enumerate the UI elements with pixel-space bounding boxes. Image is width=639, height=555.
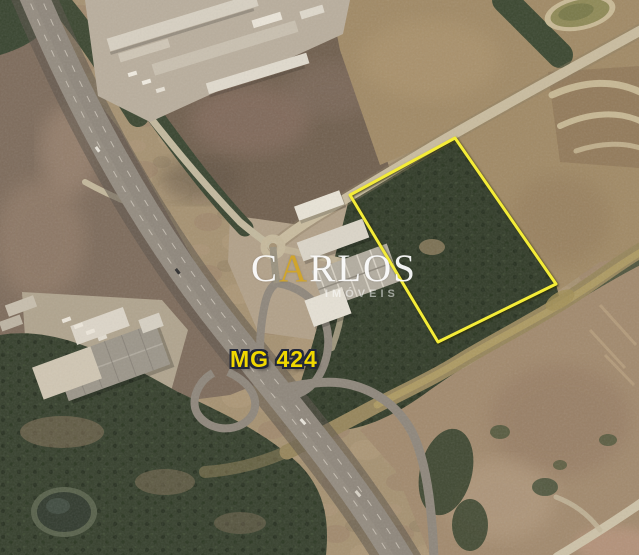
brand-watermark: CARLOS — [251, 249, 417, 288]
brand-letters-rest: RLOS — [309, 247, 417, 290]
brand-letter-first: C — [251, 247, 279, 290]
brand-letter-accent: A — [279, 247, 309, 290]
parcel-outline — [350, 138, 556, 342]
listing-aerial-photo: CARLOS IMÓVEIS MG 424 — [0, 0, 639, 555]
brand-subtitle: IMÓVEIS — [325, 288, 399, 300]
road-label: MG 424 — [230, 346, 318, 373]
